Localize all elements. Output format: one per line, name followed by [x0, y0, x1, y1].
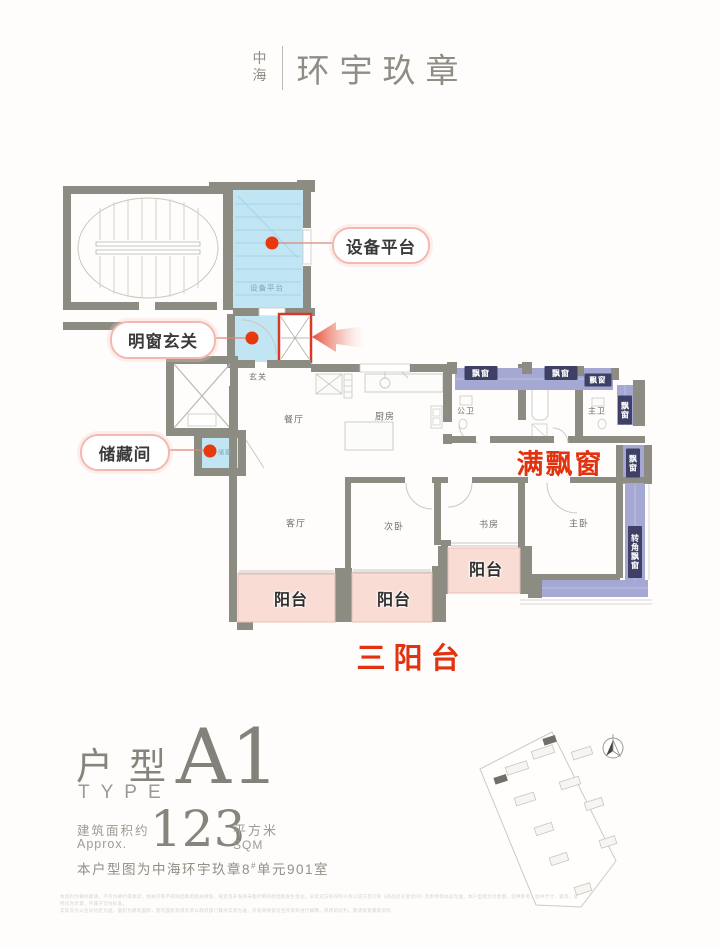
bay-window-tag-5: 飘窗: [626, 449, 640, 478]
room-label-storage: 储藏: [218, 448, 232, 457]
bay-window-tag-3: 飘窗: [585, 374, 612, 387]
brand-logo: 中海 环宇玖章: [0, 44, 720, 92]
room-label-entry: 玄关: [249, 372, 267, 383]
bay-window-tag-4: 飘窗: [618, 396, 632, 425]
room-label-master-bath: 主卫: [588, 406, 606, 417]
room-label-equipment: 设备平台: [250, 283, 284, 294]
bay-window-tag-1: 飘窗: [465, 366, 498, 380]
room-label-living: 客厅: [286, 517, 306, 530]
callout-dot-equipment: [266, 237, 279, 250]
floor-plan-canvas: [0, 0, 720, 947]
callout-dot-storage: [204, 445, 217, 458]
room-label-bedroom2: 次卧: [384, 520, 404, 533]
room-label-bath: 公卫: [457, 406, 475, 417]
entry-arrow: [312, 322, 366, 352]
highlight-three-balconies: 三阳台: [356, 635, 467, 677]
area-unit-en: SQM: [233, 838, 263, 852]
unit-note: 本户型图为中海环宇玖章8#单元901室: [77, 858, 329, 878]
stairwell: [63, 182, 235, 310]
kitchen-area: [311, 364, 452, 450]
room-label-study: 书房: [479, 518, 499, 531]
area-unit-cn: 平方米: [233, 820, 278, 839]
room-label-kitchen: 厨房: [375, 410, 395, 423]
callout-dot-entry: [246, 332, 259, 345]
bay-window-tag-2: 飘窗: [545, 366, 578, 380]
balcony-label-2: 阳台: [377, 586, 411, 610]
room-label-dining: 餐厅: [284, 413, 304, 426]
unit-note-suffix: 单元901室: [257, 862, 329, 877]
highlight-full-bay-window: 满飘窗: [517, 443, 604, 482]
disclaimer-line-1: 本资料为要约邀请，不作为要约或承诺，相关内容不排除因政府相关规划、规定及开发商未…: [60, 893, 580, 907]
disclaimer-text: 本资料为要约邀请，不作为要约或承诺，相关内容不排除因政府相关规划、规定及开发商未…: [60, 893, 580, 914]
corner-bay-window-tag: 转角飘窗: [628, 526, 642, 578]
balcony-label-3: 阳台: [469, 556, 503, 580]
area-value: 123: [150, 800, 245, 858]
brand-divider: [282, 46, 283, 90]
balcony-label-1: 阳台: [274, 586, 308, 610]
floorplan-poster: 中海 环宇玖章 玄关 餐厅 厨房 公卫 主卫 客厅 次卧 书房 主卧 设备平台 …: [0, 0, 720, 947]
area-label-en: Approx.: [77, 837, 127, 851]
callout-equipment-platform: 设备平台: [332, 227, 430, 264]
unit-note-prefix: 本户型图为中海环宇玖章8: [77, 862, 251, 877]
type-code: A1: [176, 712, 279, 801]
disclaimer-line-2: 实际交付以合同约定为准。面积为建筑面积，套内面积及得房率以政府部门最终实测为准。…: [60, 907, 580, 914]
brand-mark: 中海: [252, 51, 268, 86]
callout-bright-entry: 明窗玄关: [110, 321, 216, 359]
callout-storage-room: 储藏间: [80, 434, 170, 471]
site-plan: [480, 732, 623, 907]
north-arrow-icon: [603, 734, 623, 758]
room-label-master: 主卧: [569, 517, 589, 530]
brand-name: 环宇玖章: [297, 44, 469, 92]
